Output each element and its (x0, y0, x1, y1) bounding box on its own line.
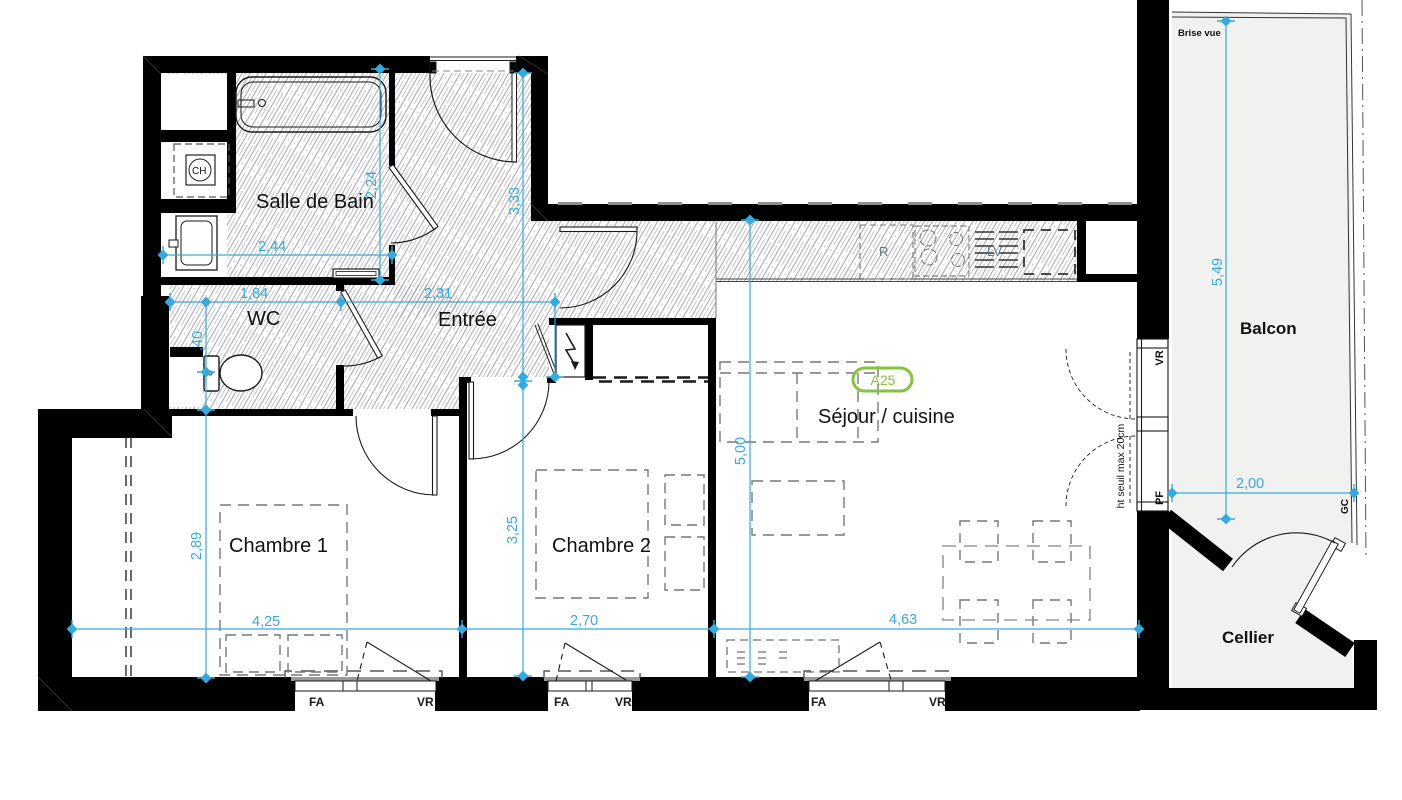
svg-text:ht seuil max 20cm: ht seuil max 20cm (1115, 423, 1127, 508)
svg-text:Brise vue: Brise vue (1178, 28, 1221, 39)
svg-text:3,33: 3,33 (507, 187, 523, 215)
svg-text:Chambre 1: Chambre 1 (229, 535, 328, 557)
svg-text:Entrée: Entrée (438, 309, 497, 331)
svg-text:4,25: 4,25 (252, 614, 280, 630)
svg-text:Séjour / cuisine: Séjour / cuisine (818, 406, 955, 428)
svg-text:VR: VR (1154, 350, 1166, 365)
svg-text:CH: CH (192, 166, 206, 177)
svg-text:Cellier: Cellier (1222, 628, 1274, 647)
svg-text:WC: WC (247, 308, 280, 330)
svg-text:R: R (879, 244, 888, 259)
svg-text:1,84: 1,84 (240, 286, 268, 302)
svg-text:VR: VR (615, 695, 632, 709)
svg-text:,40: ,40 (190, 331, 206, 351)
svg-text:2,89: 2,89 (189, 532, 205, 560)
svg-text:FA: FA (309, 695, 325, 709)
svg-text:Salle de Bain: Salle de Bain (256, 191, 374, 213)
svg-text:A25: A25 (871, 372, 896, 388)
svg-text:Chambre 2: Chambre 2 (552, 535, 651, 557)
svg-text:FA: FA (811, 695, 827, 709)
svg-text:FA: FA (554, 695, 570, 709)
svg-text:5,49: 5,49 (1210, 258, 1226, 286)
svg-text:VR: VR (929, 695, 946, 709)
svg-text:3,25: 3,25 (505, 516, 521, 544)
svg-text:Balcon: Balcon (1240, 319, 1297, 338)
svg-text:2,31: 2,31 (424, 286, 452, 302)
svg-text:5,00: 5,00 (733, 437, 749, 465)
svg-text:GC: GC (1340, 499, 1351, 514)
svg-text:2,00: 2,00 (1236, 476, 1264, 492)
svg-text:LV: LV (987, 244, 1002, 259)
svg-text:2,44: 2,44 (258, 239, 286, 255)
svg-text:PF: PF (1154, 491, 1166, 505)
svg-text:VR: VR (417, 695, 434, 709)
svg-text:2,70: 2,70 (570, 613, 598, 629)
svg-text:4,63: 4,63 (889, 612, 917, 628)
